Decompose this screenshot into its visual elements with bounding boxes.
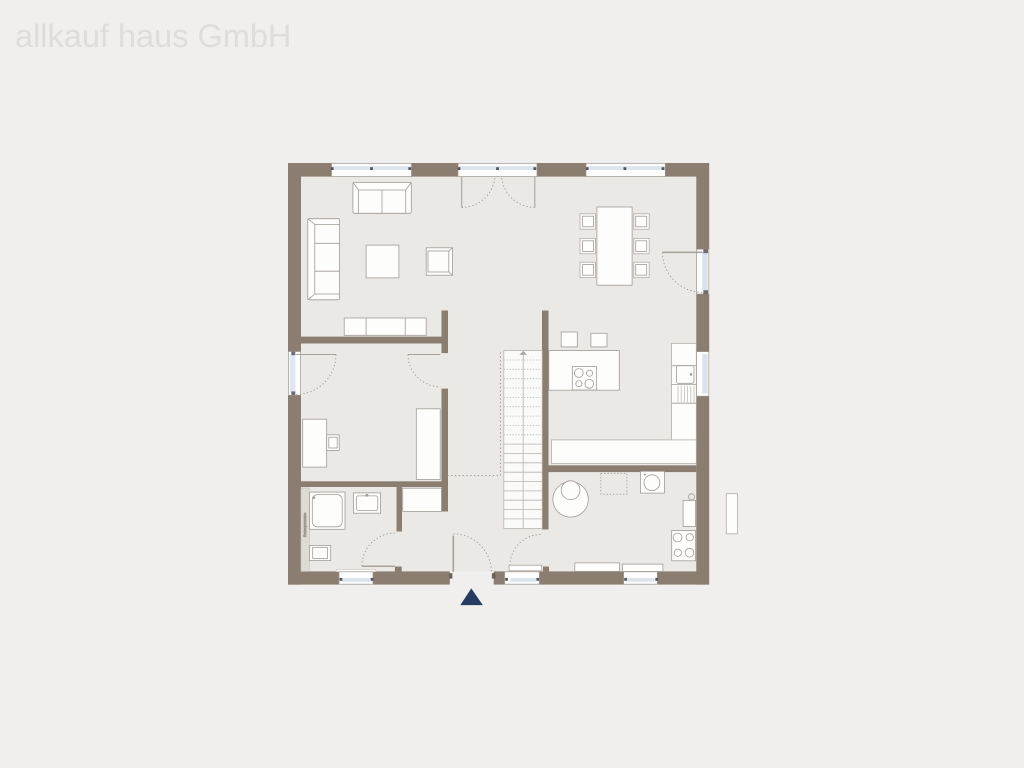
svg-text:allkauf haus GmbH: allkauf haus GmbH xyxy=(15,18,291,54)
svg-text:Raumsparwanne: Raumsparwanne xyxy=(303,513,307,537)
